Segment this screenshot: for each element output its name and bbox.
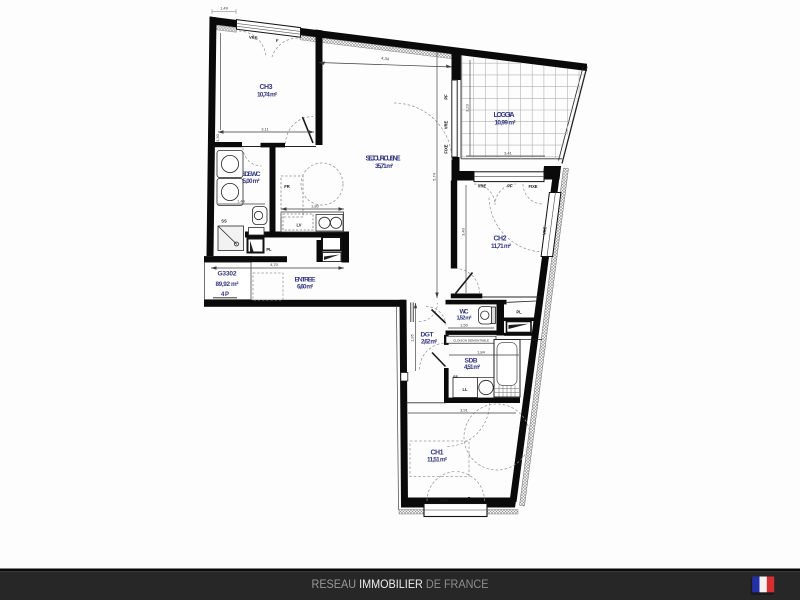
svg-text:11,51 m²: 11,51 m² <box>427 457 447 464</box>
svg-text:ENTREE: ENTREE <box>295 277 316 284</box>
svg-text:SEJOUR-CUISINE: SEJOUR-CUISINE <box>366 156 401 163</box>
svg-text:CH1: CH1 <box>431 450 444 457</box>
svg-text:G3302: G3302 <box>218 271 237 278</box>
svg-text:4,70: 4,70 <box>270 262 279 267</box>
svg-text:3,91: 3,91 <box>460 407 469 412</box>
svg-text:89,92 m²: 89,92 m² <box>216 281 239 288</box>
svg-text:10,99 m²: 10,99 m² <box>495 120 516 127</box>
svg-text:1,84: 1,84 <box>477 350 486 355</box>
svg-text:10,74 m²: 10,74 m² <box>257 92 277 99</box>
svg-text:LV: LV <box>297 223 302 228</box>
svg-text:5,00 m²: 5,00 m² <box>243 178 260 185</box>
svg-text:DGT: DGT <box>421 332 434 339</box>
svg-text:11,71 m²: 11,71 m² <box>491 243 511 250</box>
svg-text:1,80: 1,80 <box>311 204 320 209</box>
svg-text:5,74: 5,74 <box>432 172 437 181</box>
svg-text:FIXE: FIXE <box>528 184 537 189</box>
svg-text:PF: PF <box>507 184 513 189</box>
svg-text:VRE: VRE <box>440 498 449 503</box>
svg-text:CH3: CH3 <box>260 84 273 91</box>
svg-text:CLOISON DEMONTABLE: CLOISON DEMONTABLE <box>453 338 489 342</box>
svg-text:1,52 m²: 1,52 m² <box>457 315 472 322</box>
svg-text:3,23: 3,23 <box>465 103 470 112</box>
svg-text:1,50: 1,50 <box>460 323 469 328</box>
svg-text:6,60 m²: 6,60 m² <box>297 284 313 291</box>
svg-text:LL: LL <box>462 387 468 392</box>
svg-text:VRE: VRE <box>478 184 487 189</box>
svg-text:3,11: 3,11 <box>261 126 269 131</box>
svg-text:RESEAU IMMOBILIER DE FRANCE: RESEAU IMMOBILIER DE FRANCE <box>312 577 489 591</box>
svg-text:CH2: CH2 <box>494 236 507 243</box>
svg-text:FR: FR <box>284 184 290 189</box>
svg-text:SDE-WC: SDE-WC <box>242 171 261 178</box>
svg-text:VRE: VRE <box>249 35 258 41</box>
svg-text:WC: WC <box>460 309 469 316</box>
svg-text:3,40: 3,40 <box>461 227 466 236</box>
svg-text:SS: SS <box>453 375 458 379</box>
svg-text:PL: PL <box>266 247 272 252</box>
svg-text:4,51 m²: 4,51 m² <box>464 364 480 371</box>
svg-text:FIXE: FIXE <box>444 144 449 153</box>
svg-text:LOGGIA: LOGGIA <box>494 112 515 119</box>
svg-text:PL: PL <box>516 310 522 315</box>
svg-text:4P: 4P <box>221 292 229 298</box>
svg-text:VRE: VRE <box>542 226 548 235</box>
svg-text:VRE: VRE <box>444 121 449 130</box>
svg-text:3,30: 3,30 <box>215 133 220 142</box>
svg-text:PF: PF <box>444 94 449 100</box>
svg-text:4,34: 4,34 <box>381 56 390 62</box>
svg-text:35,71 m²: 35,71 m² <box>375 163 393 170</box>
svg-text:SS: SS <box>221 219 227 224</box>
svg-text:2,62 m²: 2,62 m² <box>421 339 437 346</box>
svg-text:1,49: 1,49 <box>237 199 246 204</box>
svg-text:1,95: 1,95 <box>410 333 415 342</box>
svg-text:1,49: 1,49 <box>220 6 229 11</box>
svg-text:3,41: 3,41 <box>504 150 513 155</box>
